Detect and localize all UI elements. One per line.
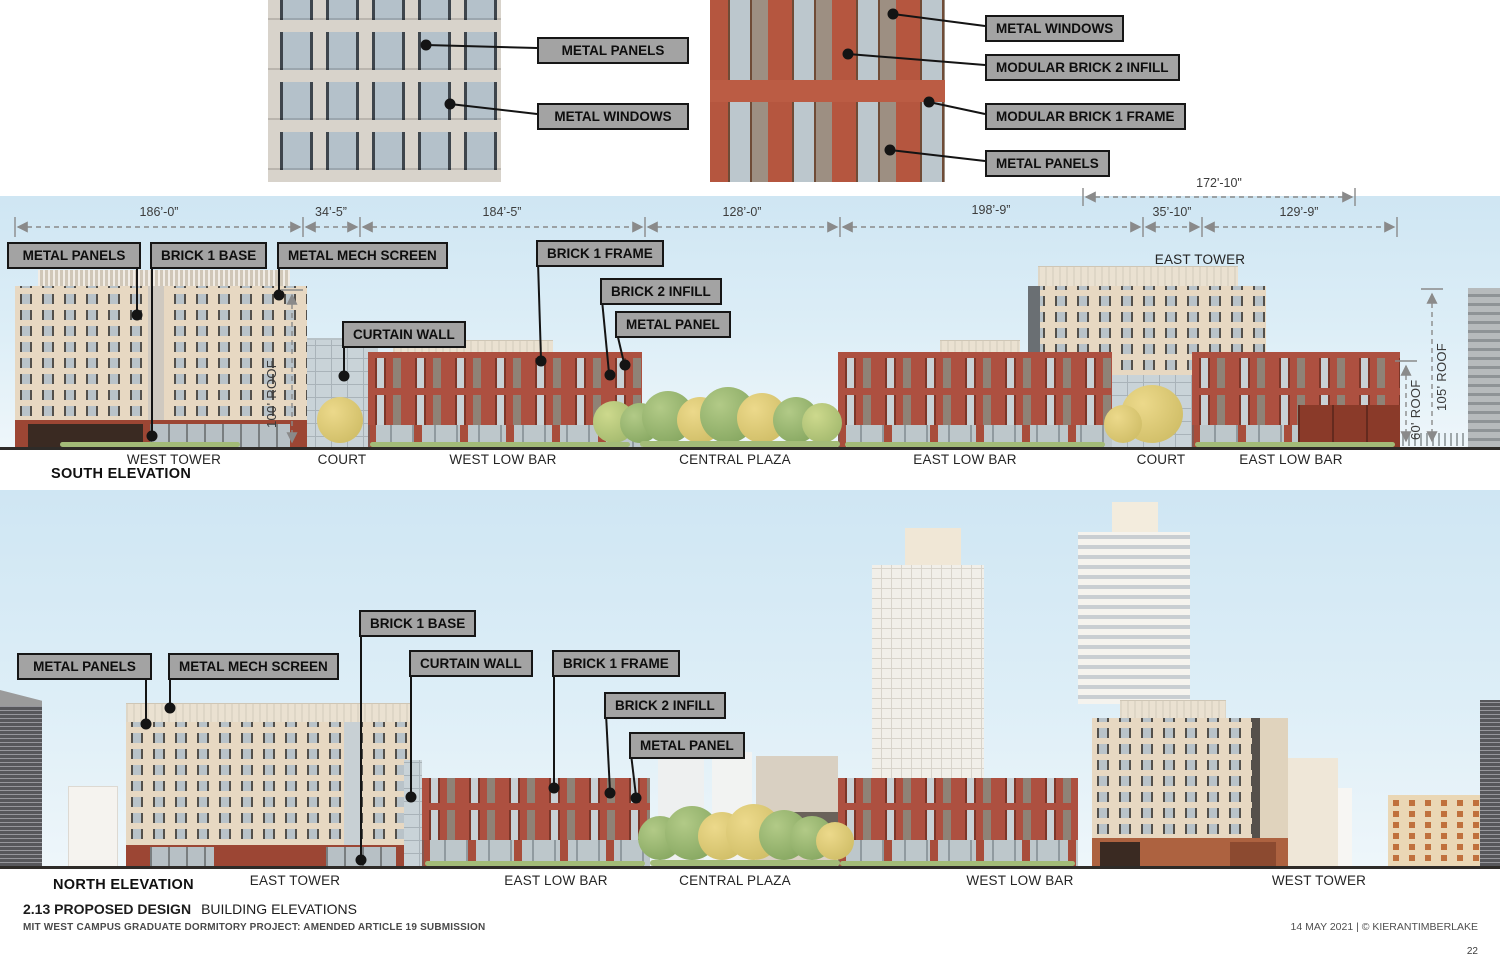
north-court-connector-glass [404,760,422,866]
callout-metal-panels-detail-left: METAL PANELS [537,37,689,64]
section-label-east-low-bar-2: EAST LOW BAR [1239,452,1342,467]
callout-south-metal-panels: METAL PANELS [7,242,141,269]
north-bg-tower-b-roof [1112,502,1158,532]
callout-metal-windows-detail-left: METAL WINDOWS [537,103,689,130]
callout-modular-brick-2-infill: MODULAR BRICK 2 INFILL [985,54,1180,81]
north-west-tower-core [1252,718,1260,840]
north-right-cream-building [1288,758,1338,866]
callout-south-brick-1-frame: BRICK 1 FRAME [536,240,664,267]
dim-7: 129’-9” [1280,205,1319,219]
callout-modular-brick-1-frame: MODULAR BRICK 1 FRAME [985,103,1186,130]
south-east-low-bar-1 [838,352,1112,425]
north-bg-tower-a [872,565,984,778]
callout-south-brick-1-base: BRICK 1 BASE [150,242,267,269]
footer-page-number: 22 [1467,946,1478,957]
north-west-tower-base-opening [1100,842,1140,866]
dim-3: 184’-5” [483,205,522,219]
tree [816,822,854,860]
north-east-low-bar [422,778,650,840]
dim-2: 34’-5” [315,205,347,219]
south-west-tower-core [148,286,164,422]
callout-north-metal-mech-screen: METAL MECH SCREEN [168,653,339,680]
callout-south-metal-mech-screen: METAL MECH SCREEN [277,242,448,269]
section-label-west-tower: WEST TOWER [127,452,221,467]
north-west-tower-base-door [1230,842,1276,866]
section-label-court-2: COURT [1137,452,1186,467]
north-west-low-bar [838,778,1078,840]
callout-metal-panels-detail-right: METAL PANELS [985,150,1110,177]
detail-photo-brick-facade [710,0,945,182]
north-bg-dark-tower [0,706,42,866]
callout-north-brick-1-base: BRICK 1 BASE [359,610,476,637]
dim-total: 172'-10" [1196,176,1242,190]
footer-section-number: 2.13 PROPOSED DESIGN [23,901,191,917]
north-east-tower-entry-2 [326,847,396,866]
section-label-central-plaza-n: CENTRAL PLAZA [679,873,791,888]
page: METAL PANELS METAL WINDOWS METAL WINDOWS… [0,0,1500,971]
section-label-west-low-bar: WEST LOW BAR [449,452,556,467]
north-right-dark-sliver [1480,700,1500,866]
dim-1: 186’-0” [140,205,179,219]
callout-south-metal-panel: METAL PANEL [615,311,731,338]
north-right-tan-building [1388,795,1480,866]
north-elevation-title: NORTH ELEVATION [53,877,194,893]
south-ground-line [0,447,1500,450]
section-label-court-1: COURT [318,452,367,467]
dim-4: 128’-0” [723,205,762,219]
roof-dim-100: 100' ROOF [264,344,279,428]
south-garage-doors [1298,405,1400,447]
tree [317,397,363,443]
north-east-tower-core [344,722,360,845]
callout-north-brick-2-infill: BRICK 2 INFILL [604,692,726,719]
dim-5: 198’-9” [972,203,1011,217]
tree [1104,405,1142,443]
north-right-white-sliver [1338,788,1352,866]
callout-north-metal-panels: METAL PANELS [17,653,152,680]
north-east-tower-entry-1 [150,847,214,866]
section-label-west-low-bar-n: WEST LOW BAR [966,873,1073,888]
footer-page-title: BUILDING ELEVATIONS [201,901,357,917]
callout-metal-windows-detail-right: METAL WINDOWS [985,15,1124,42]
south-background-building [1468,288,1500,447]
north-bg-tower-b [1078,532,1190,704]
north-bg-white-box [68,786,118,868]
callout-north-brick-1-frame: BRICK 1 FRAME [552,650,680,677]
north-west-tower-setback [1120,700,1226,719]
south-elevation-title: SOUTH ELEVATION [51,466,191,482]
north-bg-tower-a-roof [905,528,961,565]
north-ground-line [0,866,1500,869]
callout-north-curtain-wall: CURTAIN WALL [409,650,533,677]
footer-date-credit: 14 MAY 2021 | © KIERANTIMBERLAKE [1291,921,1478,933]
callout-south-curtain-wall: CURTAIN WALL [342,321,466,348]
label-east-tower-south: EAST TOWER [1155,252,1246,267]
section-label-east-low-bar-n: EAST LOW BAR [504,873,607,888]
dim-6: 35’-10” [1153,205,1192,219]
tree [802,403,842,443]
footer-title: 2.13 PROPOSED DESIGNBUILDING ELEVATIONS [23,901,357,917]
section-label-west-tower-n: WEST TOWER [1272,873,1366,888]
roof-dim-60: 60' ROOF [1408,374,1423,440]
footer-project-line: MIT WEST CAMPUS GRADUATE DORMITORY PROJE… [23,922,485,933]
north-east-tower-roof [126,703,412,723]
north-west-tower-panel-strip [1260,718,1288,840]
north-east-tower-facade [126,722,412,845]
section-label-central-plaza: CENTRAL PLAZA [679,452,791,467]
callout-north-metal-panel: METAL PANEL [629,732,745,759]
detail-photo-metal-facade [268,0,501,182]
roof-dim-105: 105' ROOF [1434,333,1449,411]
section-label-east-tower-n: EAST TOWER [250,873,341,888]
south-east-tower-core [1028,286,1040,354]
callout-south-brick-2-infill: BRICK 2 INFILL [600,278,722,305]
section-label-east-low-bar-1: EAST LOW BAR [913,452,1016,467]
